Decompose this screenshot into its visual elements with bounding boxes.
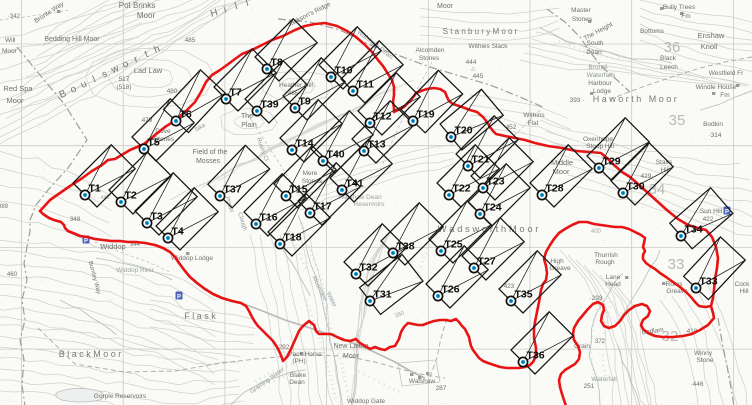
svg-text:Harbour: Harbour: [588, 80, 612, 87]
svg-text:T3: T3: [151, 211, 163, 223]
svg-text:Widdop Gate: Widdop Gate: [347, 398, 385, 405]
svg-text:T15: T15: [290, 184, 308, 196]
svg-text:T11: T11: [357, 79, 375, 91]
svg-text:Withies Slack: Withies Slack: [468, 43, 508, 50]
svg-text:400: 400: [591, 229, 602, 235]
svg-text:T12: T12: [374, 111, 392, 123]
svg-text:Fm: Fm: [720, 92, 729, 99]
svg-text:Rough: Rough: [595, 259, 615, 266]
svg-text:T40: T40: [327, 149, 345, 161]
svg-text:The: The: [241, 113, 253, 120]
svg-text:T39: T39: [261, 99, 279, 111]
svg-text:348: 348: [70, 216, 81, 223]
svg-text:T35: T35: [515, 289, 533, 301]
svg-text:T23: T23: [487, 176, 505, 188]
svg-text:Waterfall: Waterfall: [591, 376, 617, 383]
svg-text:389: 389: [0, 204, 9, 210]
svg-text:High: High: [550, 258, 564, 265]
svg-text:Stone: Stone: [697, 357, 714, 364]
svg-text:Leech: Leech: [660, 64, 678, 71]
svg-text:Field of the: Field of the: [193, 149, 228, 156]
svg-text:517: 517: [119, 76, 130, 83]
svg-text:·342: ·342: [8, 14, 21, 20]
svg-text:Moor: Moor: [2, 48, 18, 55]
svg-text:T14: T14: [296, 138, 314, 150]
svg-text:Walshaw: Walshaw: [409, 378, 435, 385]
svg-text:T38: T38: [397, 241, 415, 253]
svg-text:35: 35: [669, 112, 686, 129]
svg-text:T4: T4: [172, 226, 184, 238]
svg-text:Pot Brinks: Pot Brinks: [119, 1, 155, 10]
svg-text:429·: 429·: [640, 173, 653, 180]
svg-text:Hill: Hill: [739, 288, 749, 295]
svg-text:Lad Law: Lad Law: [134, 66, 163, 75]
svg-text:Windle House: Windle House: [696, 84, 737, 91]
svg-text:33: 33: [668, 256, 685, 273]
svg-text:Stairs: Stairs: [656, 159, 673, 166]
svg-text:T1: T1: [89, 183, 101, 195]
svg-text:Moor: Moor: [6, 96, 24, 105]
svg-text:·446: ·446: [690, 381, 703, 388]
svg-text:T24: T24: [484, 202, 502, 214]
svg-text:T26: T26: [442, 284, 460, 296]
svg-text:Red Spa: Red Spa: [3, 84, 33, 93]
svg-text:445: 445: [473, 73, 484, 80]
svg-text:T19: T19: [417, 109, 435, 121]
svg-text:T6: T6: [180, 109, 192, 121]
svg-text:Mere: Mere: [303, 170, 318, 177]
svg-text:Gorple Reservoirs: Gorple Reservoirs: [94, 393, 147, 400]
svg-text:Pack Horse: Pack Horse: [288, 351, 322, 358]
svg-text:T33: T33: [700, 276, 718, 288]
svg-text:Moor: Moor: [552, 167, 570, 176]
svg-text:Fm: Fm: [681, 13, 690, 20]
svg-text:T34: T34: [685, 224, 703, 236]
svg-text:Bedding Hill Moor: Bedding Hill Moor: [44, 36, 100, 43]
svg-text:·314: ·314: [708, 132, 721, 139]
svg-text:Moor: Moor: [137, 11, 156, 20]
svg-text:·293: ·293: [589, 295, 602, 302]
svg-text:T30: T30: [627, 181, 645, 193]
svg-text:T37: T37: [224, 184, 242, 196]
svg-text:Haworth Moor: Haworth Moor: [593, 94, 680, 104]
svg-text:(PH): (PH): [292, 358, 305, 365]
svg-text:Widdop Resr: Widdop Resr: [116, 267, 154, 274]
svg-text:Bodkin: Bodkin: [703, 121, 723, 128]
svg-text:423: 423: [504, 283, 515, 290]
svg-text:480: 480: [167, 88, 178, 95]
svg-text:T10: T10: [335, 65, 353, 77]
svg-text:Alcomden: Alcomden: [416, 47, 445, 54]
svg-text:Lane: Lane: [606, 274, 621, 281]
svg-text:393 ·: 393 ·: [570, 97, 585, 104]
svg-text:Winny: Winny: [694, 350, 713, 357]
svg-text:Flat: Flat: [528, 120, 539, 127]
svg-text:P: P: [84, 239, 88, 245]
svg-text:Dean: Dean: [586, 49, 602, 56]
svg-text:444: 444: [466, 59, 477, 66]
svg-text:Brontë: Brontë: [588, 64, 608, 71]
svg-text:T7: T7: [230, 87, 242, 99]
svg-text:Withins: Withins: [523, 112, 545, 119]
svg-text:36: 36: [664, 39, 681, 56]
svg-text:P: P: [725, 210, 729, 216]
svg-text:Knoll: Knoll: [701, 42, 718, 51]
svg-text:Reservoirs: Reservoirs: [353, 201, 385, 208]
svg-text:Enshaw: Enshaw: [698, 31, 725, 40]
svg-text:Will: Will: [5, 37, 16, 44]
svg-text:T36: T36: [527, 350, 545, 362]
svg-text:Widdop: Widdop: [100, 242, 125, 251]
svg-text:South: South: [587, 40, 604, 47]
svg-text:T31: T31: [374, 289, 392, 301]
svg-text:Head: Head: [605, 281, 621, 288]
svg-text:Stones: Stones: [419, 55, 440, 62]
svg-text:T29: T29: [603, 156, 621, 168]
svg-text:Sun Hill: Sun Hill: [700, 208, 723, 215]
svg-text:Master: Master: [571, 7, 592, 14]
svg-text:T22: T22: [453, 183, 471, 195]
svg-text:T18: T18: [284, 232, 302, 244]
svg-text:Moor: Moor: [437, 3, 454, 10]
svg-text:Dean: Dean: [289, 379, 305, 386]
svg-text:Moor: Moor: [343, 353, 360, 360]
svg-text:T21: T21: [472, 154, 490, 166]
svg-text:T20: T20: [455, 125, 473, 137]
svg-text:Bully Trees: Bully Trees: [663, 4, 696, 11]
svg-text:T27: T27: [478, 256, 496, 268]
svg-text:S t a n b u r y M o o r: S t a n b u r y M o o r: [443, 27, 518, 36]
svg-text:251: 251: [584, 383, 595, 390]
svg-text:F l a s k: F l a s k: [184, 311, 216, 321]
svg-text:△: △: [471, 66, 475, 72]
svg-text:287: 287: [436, 385, 447, 392]
svg-text:372: 372: [595, 339, 606, 345]
svg-text:Waterfalls: Waterfalls: [587, 72, 616, 79]
svg-text:Cock: Cock: [735, 281, 751, 288]
svg-text:422: 422: [703, 216, 714, 223]
svg-text:Oxenhope: Oxenhope: [583, 136, 613, 143]
svg-text:T5: T5: [148, 137, 160, 149]
svg-text:T9: T9: [299, 96, 311, 108]
svg-text:292: 292: [279, 344, 290, 351]
svg-text:T8: T8: [271, 57, 283, 69]
svg-text:Westfield Fr: Westfield Fr: [709, 70, 744, 77]
svg-text:T41: T41: [346, 178, 364, 190]
svg-text:T28: T28: [546, 183, 564, 195]
svg-text:T16: T16: [260, 212, 278, 224]
svg-text:T17: T17: [314, 201, 332, 213]
svg-text:460: 460: [7, 272, 18, 278]
svg-text:Mosses: Mosses: [196, 158, 221, 165]
svg-text:Black: Black: [660, 55, 677, 62]
svg-text:T13: T13: [368, 139, 386, 151]
svg-text:T2: T2: [125, 190, 137, 202]
svg-text:Blake: Blake: [290, 372, 307, 379]
svg-text:T32: T32: [360, 262, 378, 274]
svg-text:Bottoms: Bottoms: [640, 28, 665, 35]
svg-text:T25: T25: [445, 239, 463, 251]
svg-text:452: 452: [506, 124, 517, 131]
svg-text:Thurrish: Thurrish: [594, 252, 618, 259]
svg-text:485: 485: [185, 37, 196, 44]
svg-text:P: P: [177, 295, 181, 301]
svg-text:B l a c k M o o r: B l a c k M o o r: [59, 349, 122, 359]
svg-text:(518): (518): [116, 84, 131, 91]
svg-text:Plain: Plain: [241, 122, 257, 129]
svg-text:Stones: Stones: [572, 16, 593, 23]
